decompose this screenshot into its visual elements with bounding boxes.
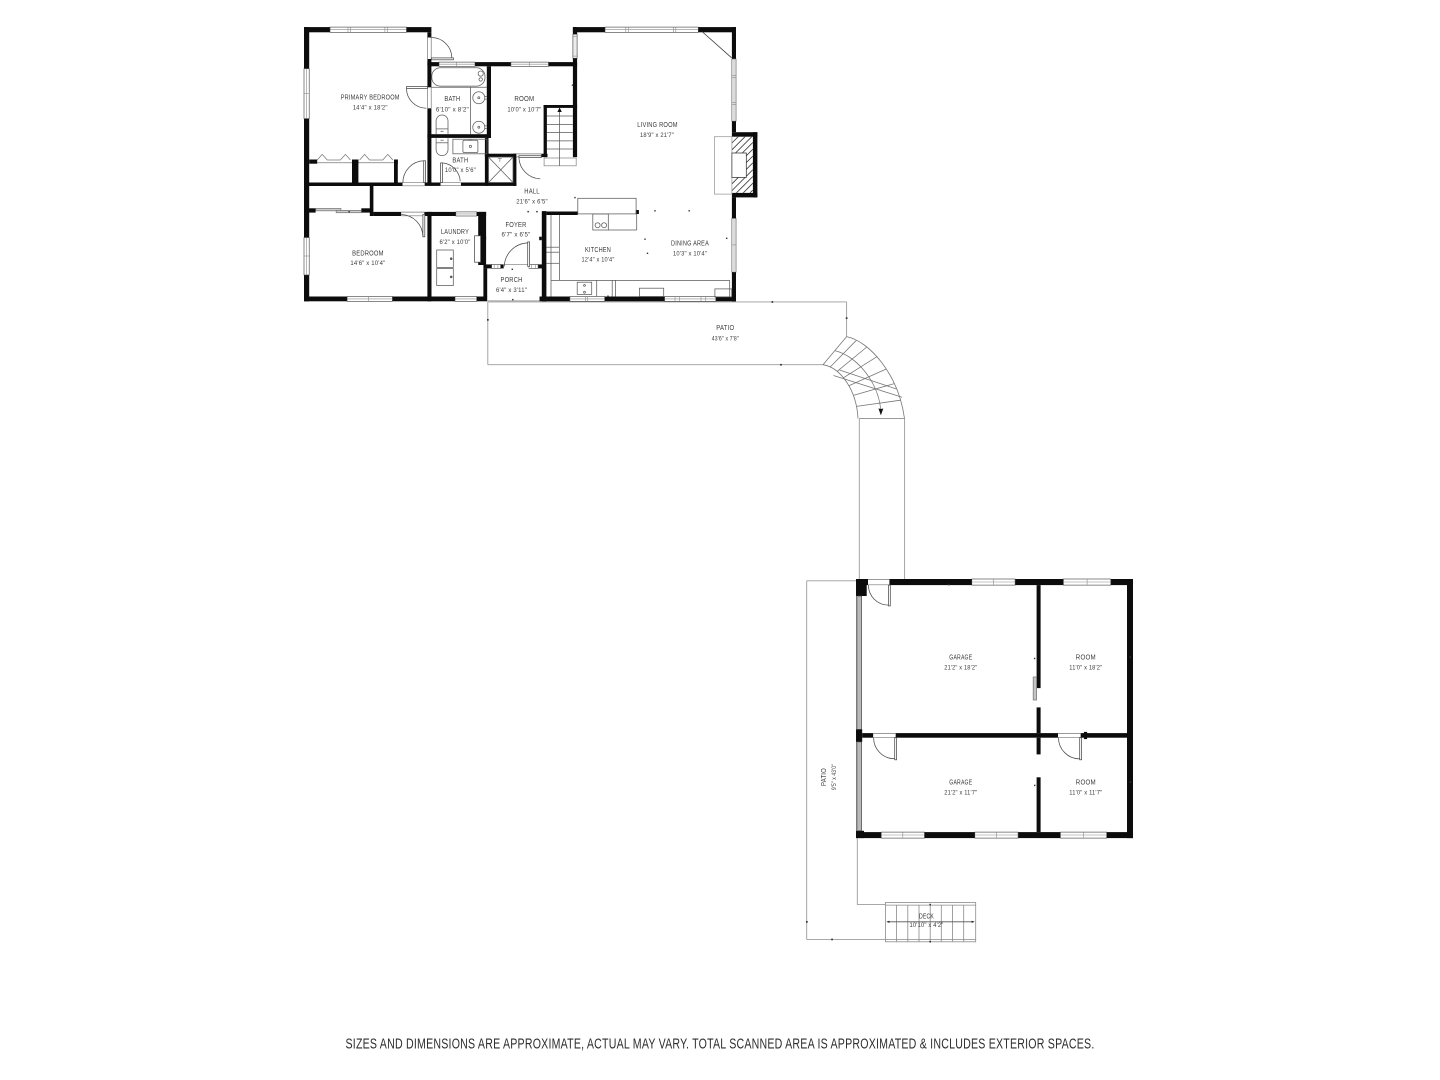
svg-text:11'0" x 18'2": 11'0" x 18'2" (1069, 664, 1102, 671)
svg-text:ROOM: ROOM (514, 96, 534, 103)
svg-text:6'2" x 10'0": 6'2" x 10'0" (440, 239, 471, 246)
svg-text:11'0" x 11'7": 11'0" x 11'7" (1069, 789, 1102, 796)
svg-text:10'0" x 10'7": 10'0" x 10'7" (507, 107, 541, 114)
svg-text:10'3" x 10'4": 10'3" x 10'4" (673, 250, 707, 257)
svg-text:HALL: HALL (524, 189, 540, 196)
svg-text:GARAGE: GARAGE (949, 655, 972, 662)
svg-text:18'9" x 21'7": 18'9" x 21'7" (640, 132, 674, 139)
svg-text:43'6" x 7'8": 43'6" x 7'8" (712, 336, 739, 343)
svg-text:PATIO: PATIO (716, 325, 734, 332)
svg-text:21'6" x 6'5": 21'6" x 6'5" (516, 198, 548, 205)
svg-text:6'7" x 6'5": 6'7" x 6'5" (502, 232, 531, 239)
svg-text:10'0" x 5'6": 10'0" x 5'6" (445, 167, 476, 174)
svg-text:ROOM: ROOM (1076, 780, 1096, 787)
svg-text:21'2" x 18'2": 21'2" x 18'2" (944, 664, 977, 671)
svg-text:DECK: DECK (919, 914, 934, 921)
svg-text:21'2" x 11'7": 21'2" x 11'7" (944, 789, 977, 796)
svg-text:9'5" x 43'0": 9'5" x 43'0" (831, 764, 838, 790)
svg-text:KITCHEN: KITCHEN (585, 247, 611, 254)
svg-text:DINING AREA: DINING AREA (671, 241, 709, 248)
svg-text:10'10" x 4'2": 10'10" x 4'2" (910, 922, 944, 929)
svg-text:ROOM: ROOM (1076, 655, 1096, 662)
svg-text:6'4" x 3'11": 6'4" x 3'11" (496, 287, 527, 294)
svg-text:GARAGE: GARAGE (949, 780, 972, 787)
svg-text:LAUNDRY: LAUNDRY (441, 229, 469, 236)
svg-text:FOYER: FOYER (506, 222, 527, 229)
svg-text:SIZES AND DIMENSIONS ARE APPRO: SIZES AND DIMENSIONS ARE APPROXIMATE, AC… (346, 1037, 1095, 1053)
svg-text:12'4" x 10'4": 12'4" x 10'4" (582, 257, 615, 264)
svg-text:PRIMARY BEDROOM: PRIMARY BEDROOM (341, 95, 400, 102)
svg-text:BEDROOM: BEDROOM (352, 251, 384, 258)
svg-text:6'10" x 8'2": 6'10" x 8'2" (436, 107, 469, 114)
svg-text:PORCH: PORCH (501, 277, 523, 284)
svg-text:PATIO: PATIO (821, 768, 828, 786)
svg-text:LIVING ROOM: LIVING ROOM (637, 122, 678, 129)
svg-text:14'6" x 10'4": 14'6" x 10'4" (350, 260, 385, 267)
svg-text:BATH: BATH (444, 96, 460, 103)
svg-text:BATH: BATH (452, 158, 468, 165)
svg-text:14'4" x 18'2": 14'4" x 18'2" (353, 105, 388, 112)
